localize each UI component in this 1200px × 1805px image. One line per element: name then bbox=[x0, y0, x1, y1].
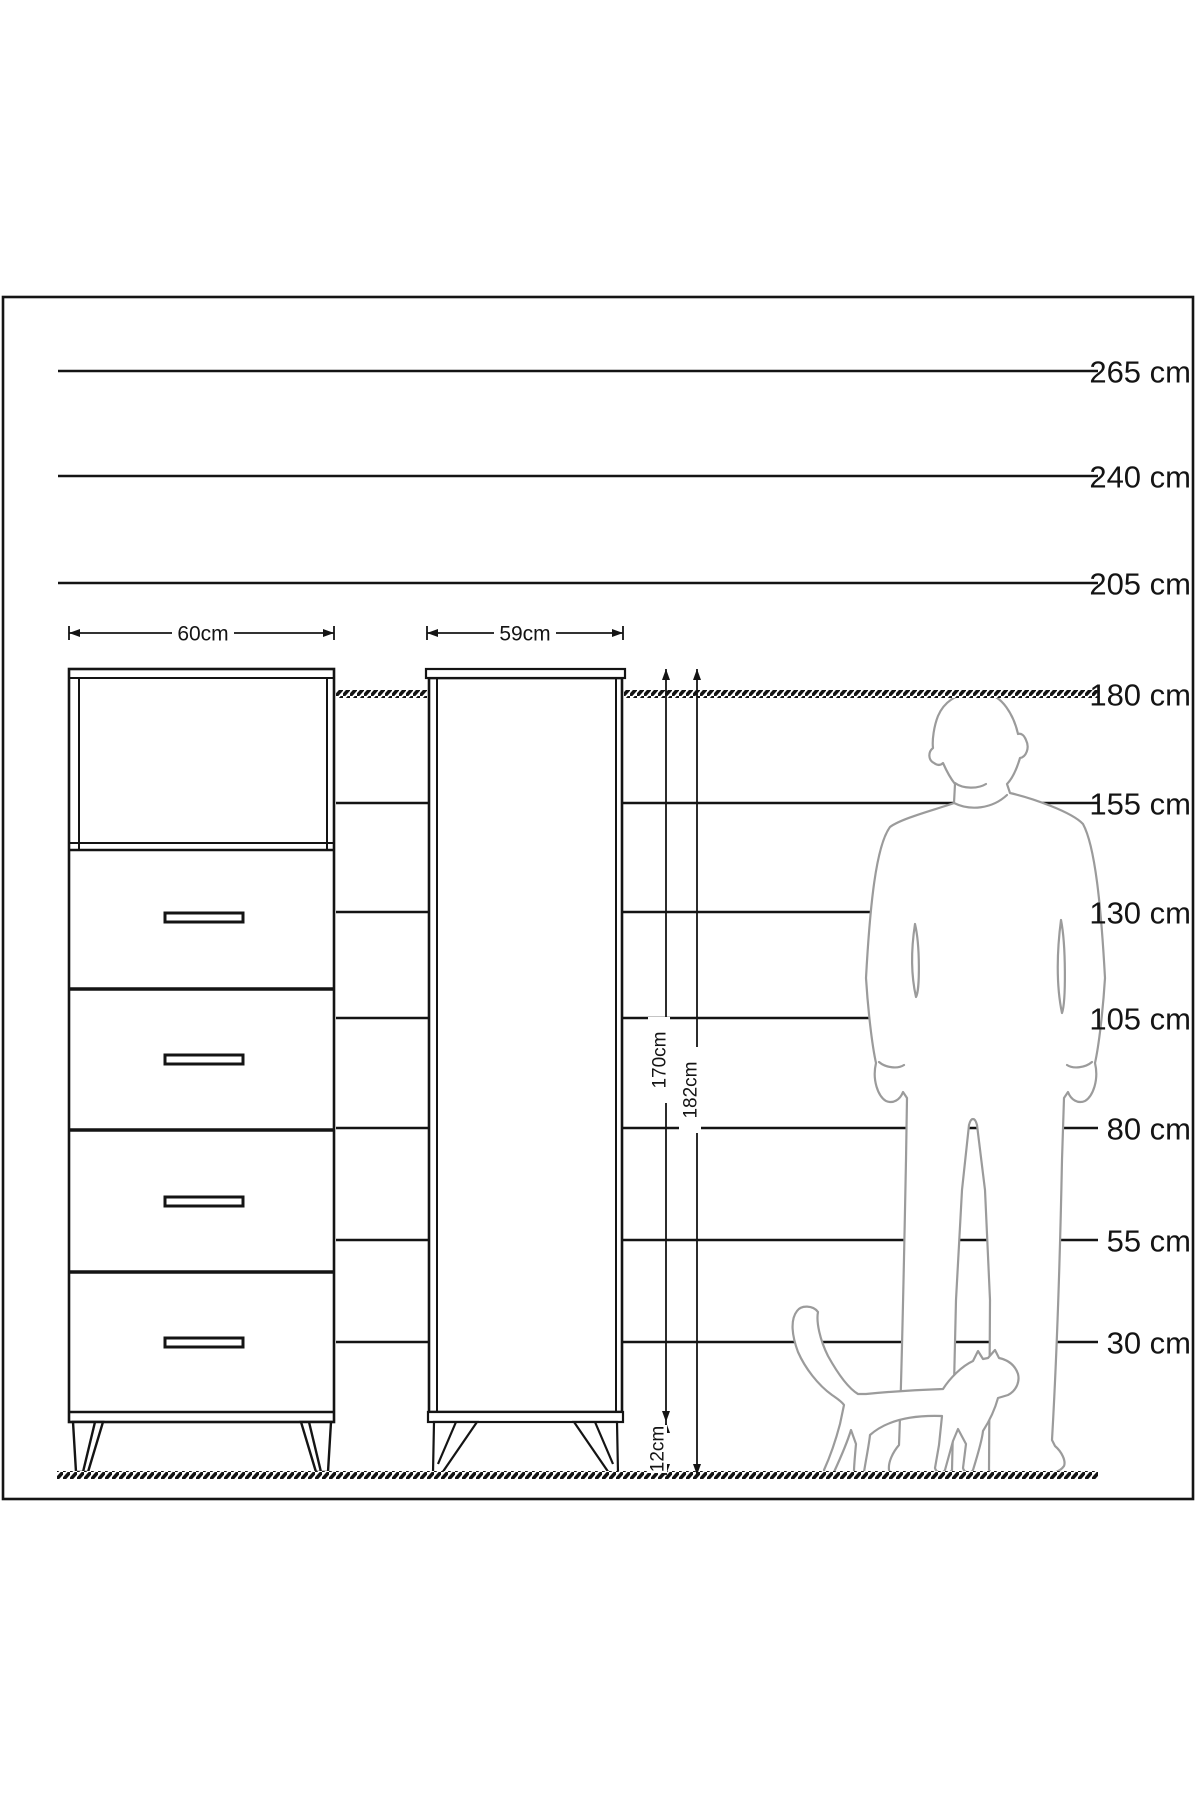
height-label-80: 80 cm bbox=[1107, 1112, 1191, 1147]
chest-drawer-handle-3 bbox=[165, 1197, 243, 1206]
chest-drawer-handle-2 bbox=[165, 1055, 243, 1064]
furniture-dimension-diagram-page: 60cm 59cm 170cm 182cm bbox=[0, 0, 1200, 1800]
cabinet-total-height-label-group: 182cm bbox=[679, 1047, 702, 1133]
cabinet-bottom-panel bbox=[428, 1412, 623, 1422]
leg-height-label: 12cm bbox=[648, 1426, 669, 1472]
height-label-130: 130 cm bbox=[1089, 896, 1191, 931]
cabinet-body bbox=[429, 678, 622, 1412]
chest-of-drawers bbox=[69, 669, 334, 1472]
cabinet-total-height-label: 182cm bbox=[681, 1061, 702, 1118]
height-label-30: 30 cm bbox=[1107, 1326, 1191, 1361]
cabinet-top-panel bbox=[426, 669, 625, 678]
hatch-180-right-segment bbox=[624, 690, 1098, 698]
cabinet-body-height-label: 170cm bbox=[650, 1031, 671, 1088]
ground-line-hatched bbox=[57, 1471, 1098, 1479]
hatch-180-left-segment bbox=[336, 690, 427, 698]
height-label-155: 155 cm bbox=[1089, 787, 1191, 822]
cabinet-body-height-label-group: 170cm bbox=[648, 1017, 671, 1103]
height-label-105: 105 cm bbox=[1089, 1002, 1191, 1037]
chest-drawer-handle-4 bbox=[165, 1338, 243, 1347]
tall-cabinet bbox=[426, 669, 625, 1473]
height-label-55: 55 cm bbox=[1107, 1224, 1191, 1259]
chest-drawer-handle-1 bbox=[165, 913, 243, 922]
chest-body bbox=[69, 669, 334, 1422]
height-label-205: 205 cm bbox=[1089, 567, 1191, 602]
chest-width-label: 60cm bbox=[177, 623, 228, 646]
dimension-diagram: 60cm 59cm 170cm 182cm bbox=[0, 0, 1200, 1800]
cabinet-width-label: 59cm bbox=[499, 623, 550, 646]
height-label-240: 240 cm bbox=[1089, 460, 1191, 495]
height-label-180: 180 cm bbox=[1089, 678, 1191, 713]
height-label-265: 265 cm bbox=[1089, 355, 1191, 390]
leg-height-label-group: 12cm bbox=[647, 1425, 669, 1473]
